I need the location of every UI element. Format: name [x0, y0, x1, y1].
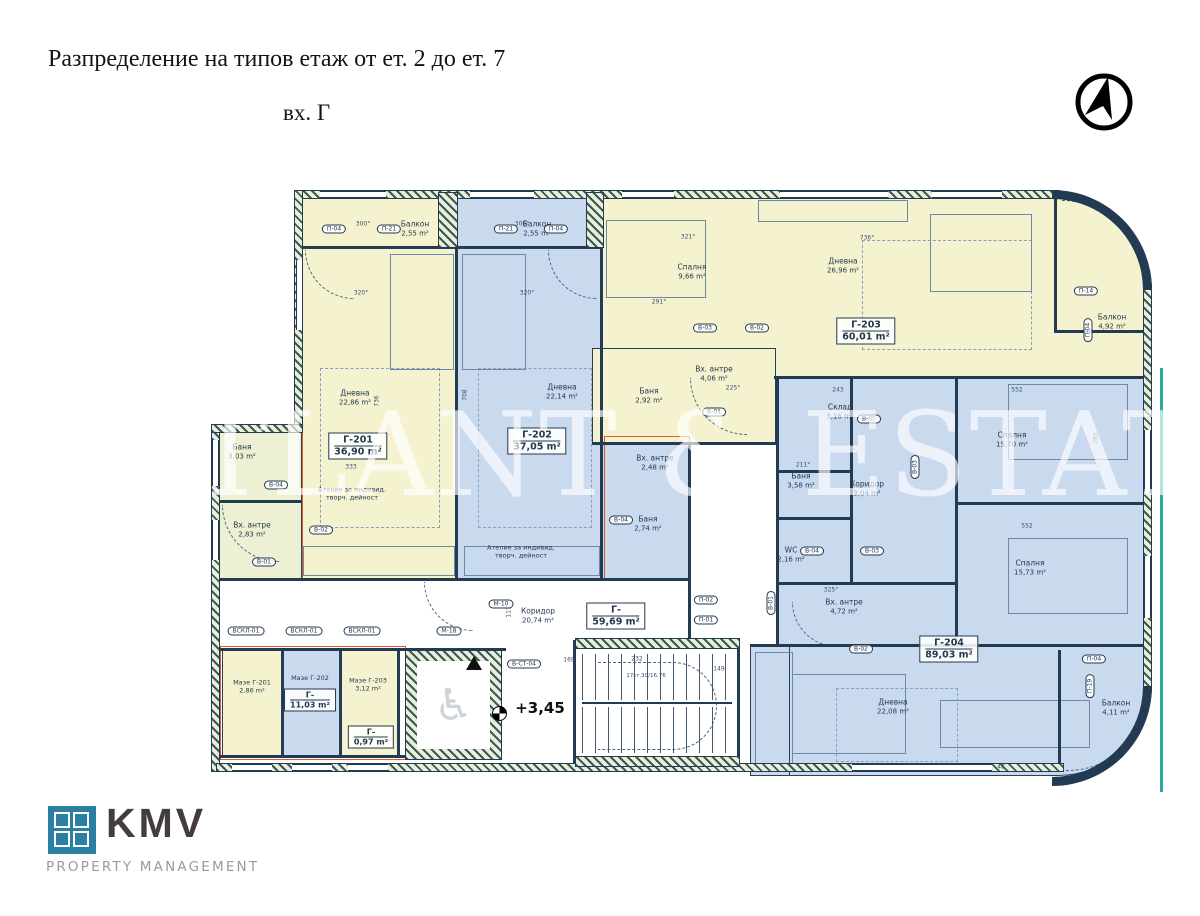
area-box-g201: Г-20136,90 m² — [328, 433, 387, 460]
room-label: Вх. антре4,72 m² — [825, 598, 863, 617]
room-label: Баня3,58 m² — [787, 472, 814, 491]
wall — [216, 578, 690, 581]
wall — [340, 650, 342, 756]
level-mark: +3,45 — [515, 699, 565, 717]
door-tag: В-04 — [800, 547, 824, 556]
dimension-label: 333 — [345, 464, 356, 471]
room-label: Баня2,92 m² — [635, 387, 662, 406]
stair-landing-wall — [575, 756, 740, 767]
door-tag: ВСКЛ-01 — [286, 627, 323, 636]
door-tag: В-03 — [693, 324, 717, 333]
dimension-label: 708 — [462, 389, 469, 400]
room-label: Коридор20,74 m² — [521, 607, 555, 626]
room-label: Баня3,03 m² — [228, 443, 255, 462]
window — [296, 260, 303, 330]
window — [622, 191, 674, 198]
room-label: Дневна22,08 m² — [877, 698, 909, 717]
dimension-label: 736 — [374, 395, 381, 406]
dimension-label: 169 — [563, 657, 574, 664]
room-label: Вх. антре2,83 m² — [233, 521, 271, 540]
room-label: Склад3,16 m² — [826, 403, 853, 422]
apt-g203-hall — [592, 348, 776, 444]
window-tag: П-21 — [494, 225, 518, 234]
logo-grid-square — [54, 831, 70, 847]
room-label: Ателие за индивид.творч. дейност — [318, 486, 386, 503]
room-label: Вх. антре4,06 m² — [695, 365, 733, 384]
dimension-label: 232 — [631, 656, 642, 663]
floor-plan-sheet: Разпределение на типов етаж от ет. 2 до … — [0, 0, 1200, 916]
warning-triangle-icon — [466, 656, 482, 670]
door-tag: ВСКЛ-01 — [344, 627, 381, 636]
dimension-label: 552 — [1011, 387, 1022, 394]
window-tag: П-04 — [322, 225, 346, 234]
entrance-label: вх. Г — [283, 100, 330, 126]
room-label: Дневна22,86 m² — [339, 389, 371, 408]
room-label: Спалня9,66 m² — [678, 263, 707, 282]
balcony-pier — [586, 192, 604, 248]
dimension-label: 243 — [832, 387, 843, 394]
room-label: Спалня15,73 m² — [1014, 559, 1046, 578]
dimension-label: 300° — [356, 221, 370, 228]
bed — [606, 220, 706, 298]
room-label: Мазе Г-2033,12 m² — [349, 677, 387, 694]
room-label: Балкон2,55 m² — [401, 220, 430, 239]
wall — [776, 379, 779, 647]
logo-grid-square — [73, 831, 89, 847]
room-label: Мазе Г-202 — [291, 674, 329, 682]
dimension-label: 325° — [824, 587, 838, 594]
area-box-g202: Г-20237,05 m² — [507, 428, 566, 455]
window — [232, 764, 272, 771]
door-tag: В-01 — [767, 591, 776, 615]
room-label: Балкон4,11 m² — [1102, 699, 1131, 718]
wall — [955, 379, 958, 644]
wall — [592, 442, 776, 445]
window — [780, 191, 888, 198]
wall — [778, 582, 958, 585]
wall — [778, 517, 850, 520]
dimension-label: 552 — [1021, 523, 1032, 530]
stair-wall — [737, 640, 740, 770]
door-tag: В-03 — [860, 547, 884, 556]
door-tag: В-03 — [911, 455, 920, 479]
dimension-label: 225° — [726, 385, 740, 392]
north-arrow-icon — [1072, 70, 1136, 138]
window — [348, 764, 388, 771]
dimension-label: 321° — [681, 234, 695, 241]
dimension-label: 149 — [713, 666, 724, 673]
sofa — [930, 214, 1032, 292]
window — [1144, 430, 1151, 492]
door-tag: М-18 — [437, 627, 462, 636]
wall — [216, 755, 406, 758]
window-tag: П-21 — [377, 225, 401, 234]
area-box-g203: Г-20360,01 m² — [836, 318, 895, 345]
door-arc — [424, 582, 473, 631]
wall — [688, 442, 691, 648]
room-label: Балкон4,92 m² — [1098, 313, 1127, 332]
door-tag: В-05 — [857, 415, 881, 424]
window-tag: П-19 — [1086, 674, 1095, 698]
window — [212, 440, 219, 486]
brand-name: KMV — [106, 800, 206, 847]
window — [320, 191, 386, 198]
area-box-maze: Г-0,97 m² — [348, 726, 394, 749]
window-tag: П-04 — [1082, 655, 1106, 664]
room-label: Баня2,74 m² — [634, 515, 661, 534]
area-box-g204: Г-20489,03 m² — [919, 636, 978, 663]
brand-tagline: PROPERTY MANAGEMENT — [46, 859, 259, 875]
window-tag: П-02 — [694, 596, 718, 605]
door-tag: В-02 — [309, 526, 333, 535]
apt-g201-balcony — [300, 196, 457, 248]
window-tag: П-04 — [544, 225, 568, 234]
balcony-pier — [438, 192, 458, 248]
door-tag: В-02 — [745, 324, 769, 333]
kmv-logo-icon — [48, 806, 96, 854]
sofa — [462, 254, 526, 370]
door-tag: В-01 — [252, 558, 276, 567]
area-box-common: Г-59,69 m² — [586, 603, 645, 630]
window — [1144, 556, 1151, 618]
area-box-maze: Г-11,03 m² — [284, 689, 336, 712]
window-tag: П-14 — [1074, 287, 1098, 296]
window — [852, 764, 992, 771]
wall — [600, 196, 603, 580]
sofa — [390, 254, 454, 370]
room-label: Коридор3,04 m² — [850, 480, 884, 499]
wall — [398, 650, 400, 756]
door-tag: М-10 — [489, 600, 514, 609]
wheelchair-icon: ♿ — [434, 680, 473, 731]
level-symbol — [492, 706, 507, 721]
room-label: Дневна26,96 m² — [827, 257, 859, 276]
frame-line — [1160, 368, 1163, 792]
page-title: Разпределение на типов етаж от ет. 2 до … — [48, 46, 505, 73]
kitchen-counter — [303, 546, 455, 576]
room-label: Мазе Г-2012,86 m² — [233, 679, 271, 696]
wall — [774, 376, 1150, 379]
dimension-label: 211° — [796, 462, 810, 469]
kitchen-counter — [755, 652, 793, 770]
door-tag: ВСКЛ-01 — [228, 627, 265, 636]
logo-grid-square — [73, 812, 89, 828]
door-tag: В-01 — [702, 408, 726, 417]
rounded-corner-top-right — [1052, 190, 1152, 290]
stair-note: 17ст.30/16,76 — [626, 673, 666, 679]
window — [470, 191, 534, 198]
room-label: Дневна22,14 m² — [546, 383, 578, 402]
dimension-label: 48 — [997, 764, 1005, 771]
dimension-label: 736° — [860, 235, 874, 242]
window — [212, 520, 219, 560]
wall — [955, 502, 1150, 505]
room-label: Вх. антре2,48 m² — [636, 454, 674, 473]
wall — [216, 500, 302, 503]
dimension-label: 285 — [1093, 432, 1100, 443]
dimension-label: 320° — [520, 290, 534, 297]
door-tag: В-СТ-04 — [507, 660, 541, 669]
stair-landing-line — [582, 702, 732, 704]
window — [292, 764, 332, 771]
window-tag: П-04 — [1084, 318, 1093, 342]
room-label: Спалня15,70 m² — [996, 431, 1028, 450]
door-tag: В-04 — [609, 516, 633, 525]
elevator-car: ♿ — [417, 661, 490, 749]
dimension-label: 320° — [354, 290, 368, 297]
dimension-label: 291° — [652, 299, 666, 306]
door-tag: В-02 — [849, 645, 873, 654]
room-label: Ателие за индивид.творч. дейност — [487, 544, 555, 561]
exterior-wall — [211, 424, 303, 433]
window — [932, 191, 1002, 198]
wall — [455, 196, 458, 580]
stair-landing-wall — [575, 638, 740, 649]
window-tag: П-01 — [694, 616, 718, 625]
logo-grid-square — [54, 812, 70, 828]
door-tag: В-04 — [264, 481, 288, 490]
kitchen-counter — [758, 200, 908, 222]
